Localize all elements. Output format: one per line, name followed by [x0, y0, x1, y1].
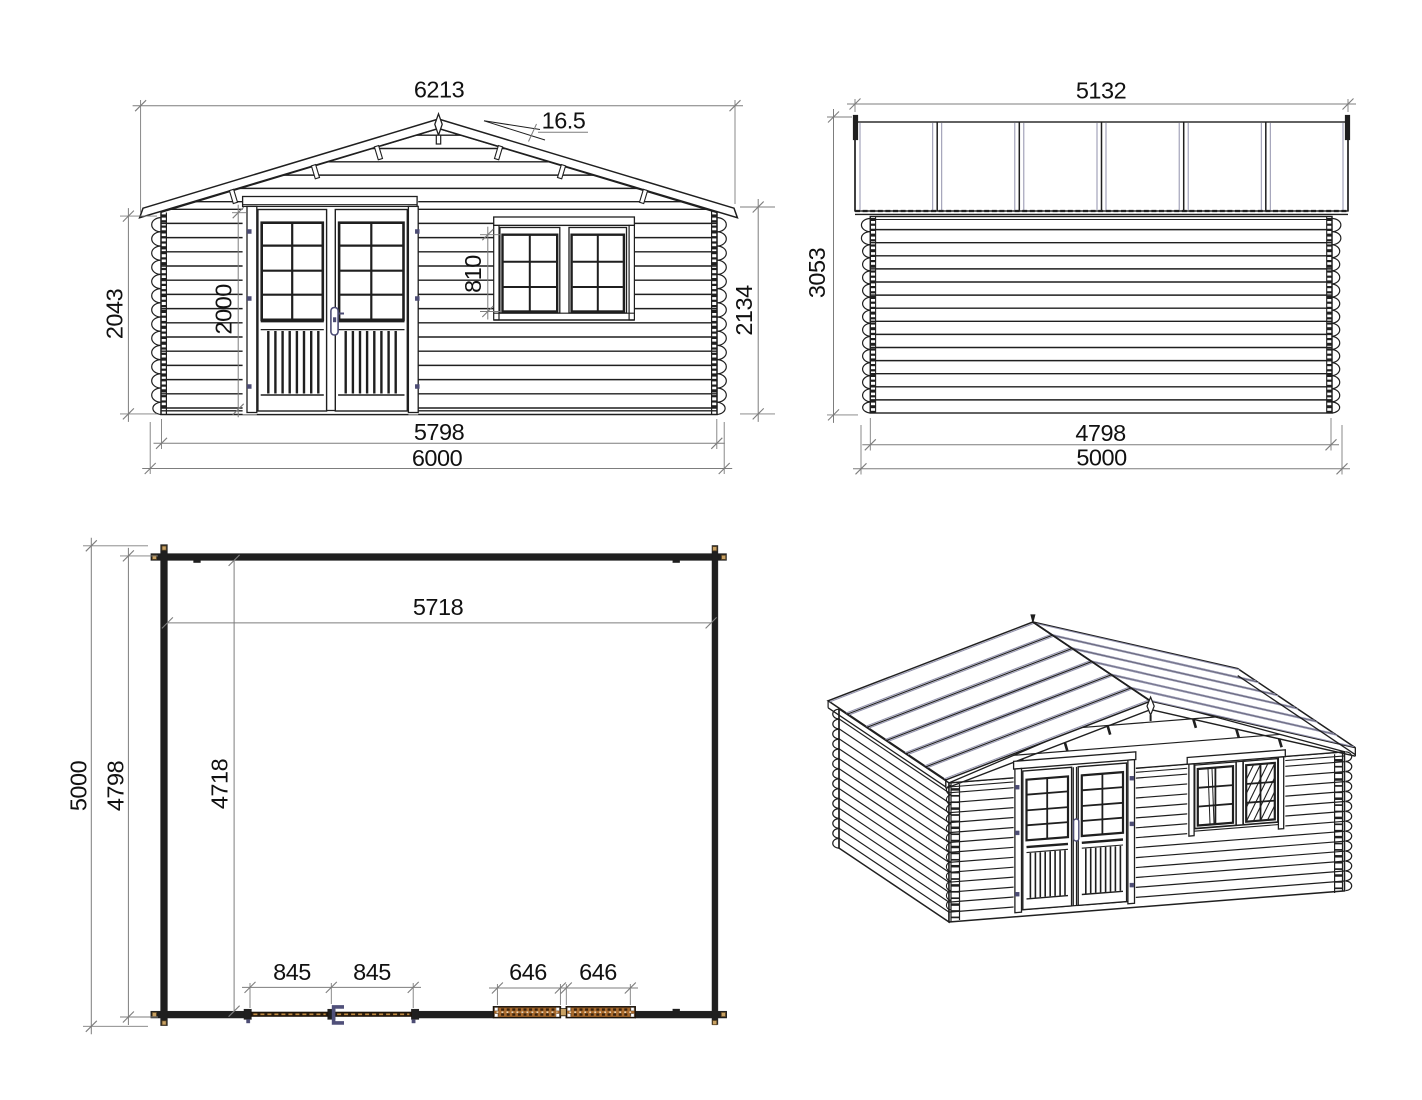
- svg-text:646: 646: [579, 959, 617, 985]
- svg-text:16.5: 16.5: [542, 108, 586, 134]
- svg-text:845: 845: [353, 959, 391, 985]
- svg-text:3053: 3053: [804, 247, 830, 298]
- svg-text:4798: 4798: [1075, 420, 1126, 446]
- svg-text:5798: 5798: [414, 419, 465, 445]
- svg-text:2134: 2134: [731, 285, 757, 336]
- svg-text:810: 810: [460, 255, 486, 293]
- svg-text:646: 646: [509, 959, 547, 985]
- svg-text:5132: 5132: [1076, 78, 1126, 104]
- svg-text:6000: 6000: [412, 445, 463, 471]
- svg-text:4718: 4718: [207, 758, 233, 809]
- svg-text:5718: 5718: [413, 594, 464, 620]
- svg-text:2000: 2000: [211, 284, 237, 335]
- svg-text:845: 845: [273, 959, 311, 985]
- svg-text:6213: 6213: [414, 77, 465, 103]
- svg-text:2043: 2043: [102, 288, 128, 339]
- svg-text:5000: 5000: [66, 760, 92, 811]
- svg-text:4798: 4798: [103, 760, 129, 811]
- svg-text:5000: 5000: [1076, 445, 1127, 471]
